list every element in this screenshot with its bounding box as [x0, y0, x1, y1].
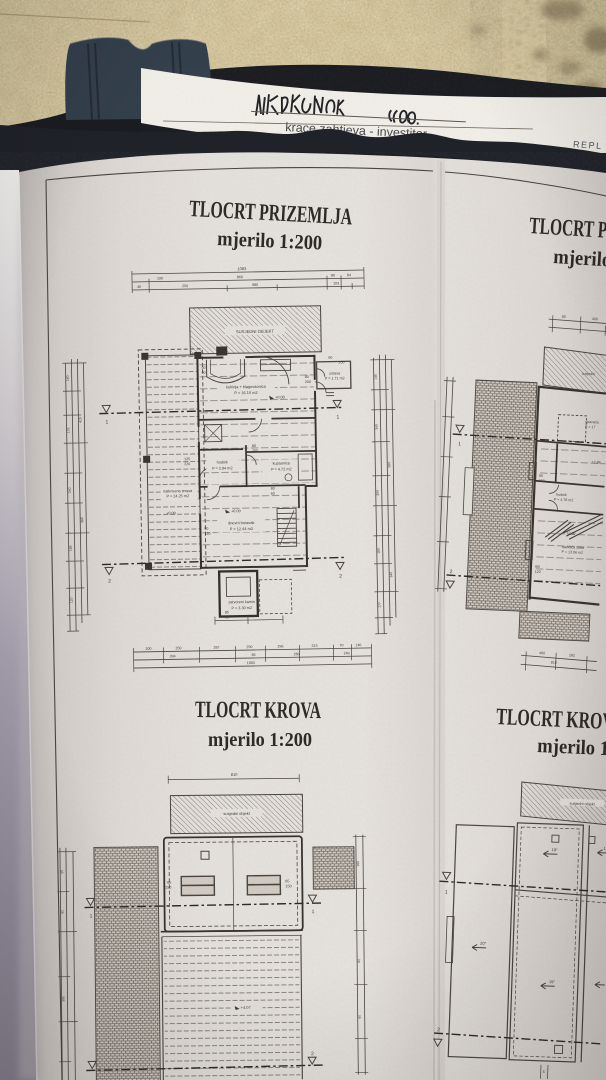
svg-text:313: 313: [311, 644, 317, 648]
svg-text:120: 120: [204, 532, 210, 536]
svg-text:P = 1.71 m2: P = 1.71 m2: [325, 376, 345, 380]
svg-text:120: 120: [70, 597, 74, 603]
svg-text:980: 980: [252, 283, 258, 287]
svg-text:kupaonica: kupaonica: [273, 461, 291, 465]
svg-text:175: 175: [67, 427, 71, 433]
svg-text:20°: 20°: [480, 941, 487, 946]
svg-text:145: 145: [374, 374, 378, 380]
svg-text:1: 1: [105, 419, 108, 425]
svg-text:80: 80: [252, 444, 256, 448]
svg-text:810: 810: [231, 772, 239, 777]
svg-text:1083: 1083: [247, 661, 255, 665]
svg-text:55: 55: [60, 870, 64, 874]
svg-text:P = 12.44 m2: P = 12.44 m2: [230, 526, 253, 531]
svg-text:2: 2: [311, 1051, 314, 1057]
svg-text:200: 200: [252, 449, 258, 453]
svg-text:+0.00: +0.00: [166, 511, 176, 515]
svg-text:60: 60: [358, 1015, 362, 1019]
svg-text:+2.86: +2.86: [591, 460, 600, 464]
svg-text:120: 120: [535, 570, 541, 574]
svg-text:+4.07: +4.07: [241, 1005, 252, 1010]
svg-text:susjedni objekt: susjedni objekt: [223, 811, 250, 816]
svg-text:P = 4.72 m2: P = 4.72 m2: [271, 467, 292, 471]
svg-text:1: 1: [312, 909, 315, 915]
svg-text:200: 200: [305, 380, 311, 384]
svg-text:287: 287: [213, 646, 219, 650]
svg-text:150: 150: [285, 884, 291, 888]
svg-text:190: 190: [157, 276, 163, 280]
svg-text:1083: 1083: [237, 266, 247, 271]
svg-text:P = 3.30 m2: P = 3.30 m2: [231, 606, 252, 610]
svg-text:85: 85: [225, 610, 229, 614]
svg-text:390: 390: [61, 996, 65, 1002]
svg-text:hodnik: hodnik: [217, 460, 228, 464]
svg-text:90: 90: [61, 910, 65, 914]
svg-text:300: 300: [376, 490, 380, 496]
svg-text:TLOCRT KROVA: TLOCRT KROVA: [195, 697, 321, 724]
svg-text:460: 460: [539, 651, 545, 655]
svg-text:160: 160: [66, 375, 70, 381]
svg-text:80: 80: [271, 487, 275, 491]
svg-text:70: 70: [339, 643, 343, 647]
svg-text:250: 250: [246, 645, 252, 649]
svg-text:860: 860: [237, 275, 243, 279]
svg-text:65: 65: [285, 879, 289, 883]
svg-text:+0.00: +0.00: [275, 395, 285, 399]
svg-text:2: 2: [108, 578, 111, 584]
svg-text:249: 249: [344, 651, 350, 655]
svg-text:19°: 19°: [551, 847, 558, 852]
svg-text:kuhinja + blagovaonica: kuhinja + blagovaonica: [226, 384, 267, 390]
svg-text:ostava: ostava: [329, 371, 341, 375]
svg-text:80: 80: [562, 315, 566, 319]
svg-text:mjerilo 1:200: mjerilo 1:200: [208, 729, 312, 751]
svg-text:177: 177: [378, 602, 382, 608]
svg-text:200: 200: [145, 647, 151, 651]
svg-text:susjedni: susjedni: [582, 372, 596, 377]
svg-text:1: 1: [336, 414, 339, 420]
svg-text:2: 2: [437, 1027, 440, 1033]
svg-text:19°: 19°: [549, 979, 556, 984]
svg-text:180: 180: [377, 548, 381, 554]
svg-text:250: 250: [175, 646, 181, 650]
svg-text:1: 1: [445, 889, 448, 895]
svg-text:P = 16.15 m2: P = 16.15 m2: [234, 390, 257, 395]
svg-text:P = 4.78 m2: P = 4.78 m2: [554, 498, 574, 503]
svg-text:394: 394: [170, 654, 176, 658]
svg-text:240: 240: [68, 487, 72, 493]
svg-text:2: 2: [449, 569, 452, 575]
svg-text:65: 65: [167, 881, 171, 885]
svg-text:90/: 90/: [535, 565, 540, 569]
svg-text:282: 282: [569, 653, 575, 657]
svg-text:280: 280: [294, 652, 300, 656]
svg-text:560: 560: [387, 462, 391, 468]
svg-text:296: 296: [277, 644, 283, 648]
svg-text:60: 60: [328, 356, 332, 360]
svg-text:60: 60: [225, 615, 229, 619]
svg-text:340: 340: [389, 572, 393, 578]
svg-text:40: 40: [137, 285, 141, 289]
svg-text:90: 90: [539, 474, 543, 478]
svg-text:dnevni boravak: dnevni boravak: [228, 520, 255, 525]
svg-text:zatvoreni kamin: zatvoreni kamin: [228, 600, 255, 604]
svg-text:P = 24.25 m2: P = 24.25 m2: [166, 494, 189, 498]
svg-text:1: 1: [90, 913, 93, 919]
svg-text:2: 2: [339, 573, 342, 579]
svg-text:200: 200: [539, 479, 545, 483]
svg-text:220: 220: [184, 462, 190, 466]
svg-text:80: 80: [305, 375, 309, 379]
svg-text:+0.00: +0.00: [231, 509, 241, 513]
svg-text:340: 340: [375, 424, 379, 430]
svg-text:1: 1: [458, 441, 461, 447]
svg-text:200: 200: [338, 360, 344, 364]
svg-text:103: 103: [333, 281, 339, 285]
svg-text:150: 150: [165, 886, 171, 890]
svg-text:P = 2.84 m2: P = 2.84 m2: [212, 466, 233, 470]
svg-text:415: 415: [78, 417, 82, 423]
svg-text:natkrivena terasa: natkrivena terasa: [163, 489, 193, 494]
svg-text:165: 165: [356, 861, 360, 867]
svg-text:60: 60: [202, 366, 206, 370]
svg-text:+2.86: +2.86: [566, 531, 575, 535]
svg-text:400: 400: [592, 317, 598, 321]
svg-text:60: 60: [357, 959, 361, 963]
svg-text:90: 90: [204, 527, 208, 531]
svg-text:spavaća: spavaća: [585, 420, 599, 425]
svg-text:85: 85: [252, 653, 256, 657]
svg-text:5: 5: [543, 1070, 545, 1074]
svg-text:84: 84: [347, 273, 351, 277]
svg-text:90: 90: [202, 371, 206, 375]
svg-text:250: 250: [182, 284, 188, 288]
svg-text:185: 185: [69, 545, 73, 551]
svg-text:60: 60: [271, 492, 275, 496]
svg-text:810: 810: [551, 661, 557, 665]
svg-text:80: 80: [331, 273, 335, 277]
svg-text:125: 125: [184, 457, 190, 461]
svg-text:385: 385: [80, 517, 84, 523]
svg-text:P = 17: P = 17: [585, 425, 596, 429]
svg-text:mjerilo 1:200: mjerilo 1:200: [217, 228, 323, 255]
svg-text:hodnik: hodnik: [556, 493, 567, 497]
svg-text:140: 140: [355, 643, 361, 647]
svg-text:SUSJEDNI OBJEKT: SUSJEDNI OBJEKT: [236, 329, 275, 335]
